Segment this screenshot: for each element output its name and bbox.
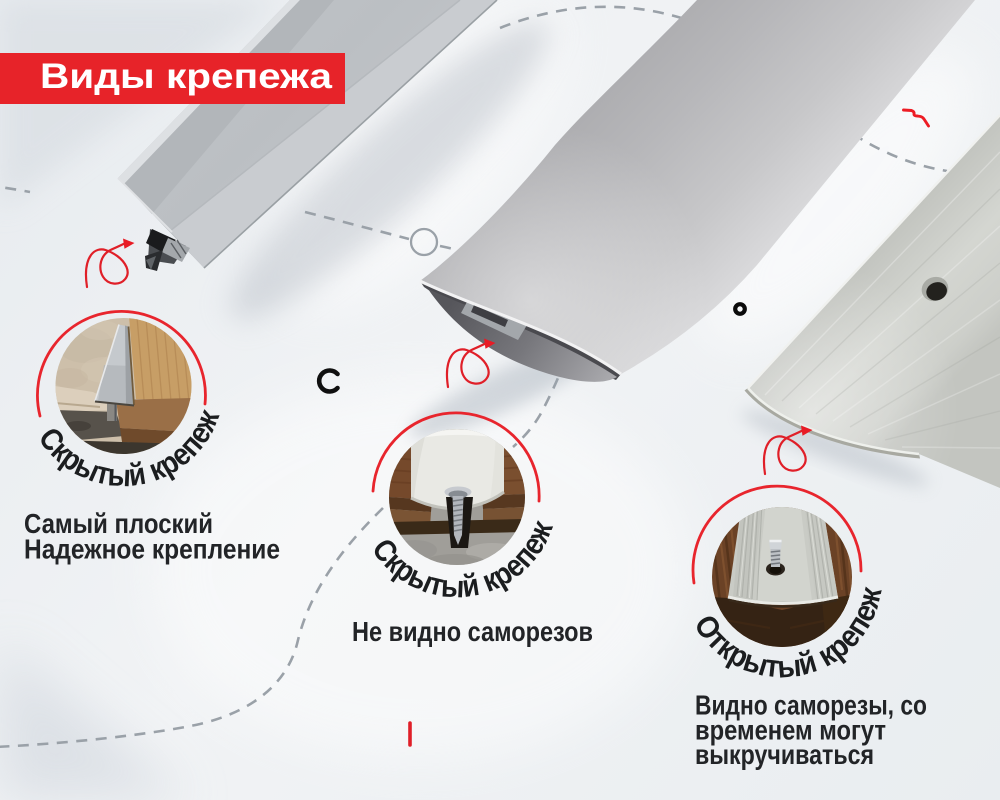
svg-text:Виды крепежа: Виды крепежа xyxy=(40,57,333,96)
svg-text:Надежное крепление: Надежное крепление xyxy=(24,534,280,565)
svg-text:Не видно саморезов: Не видно саморезов xyxy=(352,616,593,647)
svg-text:выкручиваться: выкручиваться xyxy=(695,739,874,770)
